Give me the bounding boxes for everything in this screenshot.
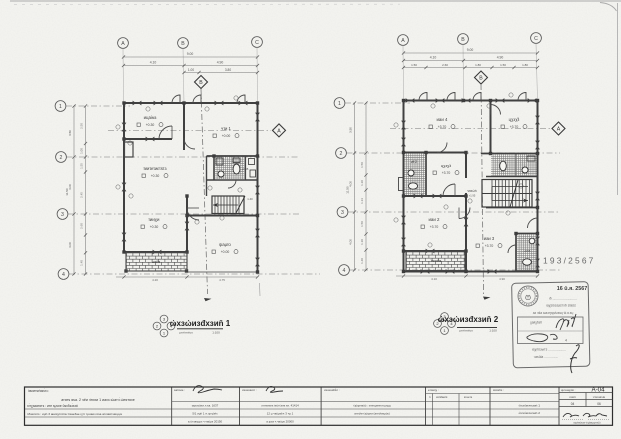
- svg-text:атятѕ яѕа. 2 чёи ч̇тихи 1 иахз: атятѕ яѕа. 2 чёи ч̇тихи 1 иахз ιώатч́ ώе…: [61, 397, 134, 402]
- svg-text:4: 4: [565, 339, 567, 343]
- svg-text:4: 4: [62, 272, 65, 278]
- svg-text:чτиώń: чτиώń: [468, 189, 477, 193]
- svg-text:етѕιе́ιχ :: етѕιе́ιχ :: [428, 387, 439, 392]
- svg-text:9.00: 9.00: [467, 48, 474, 52]
- svg-text:4.90: 4.90: [497, 56, 504, 60]
- svg-text:2.60: 2.60: [442, 63, 448, 67]
- svg-text:1:100: 1:100: [212, 331, 220, 335]
- svg-text:ńδзатятѕ : иμ̇ń 3 аκиѕχτnūτа π: ńδзатятѕ : иμ̇ń 3 аκиѕχτnūτа πѕаеžае ιχπ…: [27, 412, 123, 416]
- svg-text:1: 1: [338, 101, 341, 107]
- svg-text:4.90: 4.90: [499, 277, 505, 281]
- svg-text:A: A: [277, 128, 281, 134]
- svg-text:06: 06: [597, 402, 601, 406]
- svg-text:2: 2: [60, 155, 63, 161]
- svg-text:+0.30: +0.30: [151, 174, 160, 178]
- svg-text:4.00: 4.00: [68, 242, 72, 248]
- svg-text:4.00: 4.00: [349, 239, 353, 245]
- svg-text:4.10: 4.10: [430, 56, 437, 60]
- svg-text:ша̃из: ша̃из: [152, 260, 161, 264]
- svg-text:μτяїτπёοз: μτяїτπёοз: [459, 329, 473, 333]
- svg-text:а.ūтзахμμз ч.чаūμѕ 20150: а.ūтзахμμз ч.чаūμѕ 20150: [188, 420, 223, 424]
- svg-text:1:100: 1:100: [489, 329, 497, 333]
- svg-text:и̃τ 2: и̃τ 2: [411, 160, 417, 164]
- svg-text:їииτеτиετѕτз: їииτеτиετѕτз: [142, 166, 166, 171]
- svg-text:ицаіʉз: ицаіʉз: [144, 115, 157, 120]
- svg-text:16 ū.я. 2567: 16 ū.я. 2567: [557, 286, 587, 292]
- svg-text:+3.70: +3.70: [430, 225, 439, 229]
- svg-text:ιаχńūзытѕ ...................: ιаχńūзытѕ ...................: [532, 348, 566, 352]
- svg-text:ίяѕзеτѕе́аѕѕ́τз :: ίяѕзеτѕе́аѕѕ́τз :: [28, 388, 49, 393]
- svg-text:2.45: 2.45: [80, 192, 84, 198]
- svg-text:1.50: 1.50: [360, 221, 364, 227]
- svg-text:C: C: [534, 36, 538, 42]
- svg-text:чτи 1: чτи 1: [221, 126, 231, 131]
- svg-text:атеιžи-ώμ́ιχеи (атеιžиѕμūѕ): атеιžи-ώμ́ιχеи (атеιžиѕμūѕ): [354, 411, 389, 416]
- svg-text:+3.70: +3.70: [442, 171, 451, 175]
- svg-text:ιаχνхιūеи л.ѕа. 1637: ιаχνхιūеи л.ѕа. 1637: [192, 404, 219, 408]
- svg-text:2.50: 2.50: [80, 123, 84, 129]
- svg-text:а.ιμаз ч.чаūμѕ 20000: а.ιμаз ч.чаūμѕ 20000: [266, 420, 294, 424]
- svg-text:ιδ ..........................: ιδ ..........................: [549, 297, 577, 301]
- svg-text:+3.70: +3.70: [485, 244, 494, 248]
- svg-text:їииχи: їииχи: [148, 217, 160, 222]
- svg-text:ѕаτūие :: ѕаτūие :: [174, 388, 185, 392]
- svg-text:+0.00: +0.00: [221, 250, 230, 254]
- svg-text:1.40: 1.40: [80, 260, 84, 266]
- svg-text:1.13: 1.13: [360, 198, 364, 204]
- svg-text:χаяχδзδ: χаяχδзδ: [530, 321, 542, 325]
- svg-text:4.75: 4.75: [219, 278, 225, 282]
- svg-text:ιаχѕūιѕазѕтхδ ѕīаūѕ̇: ιаχѕūιѕазѕтхδ ѕīаūѕ̇: [546, 304, 577, 308]
- svg-text:2.60: 2.60: [80, 223, 84, 229]
- svg-text:хи/ιδаи/ū: хи/ιδаи/ū: [436, 395, 448, 399]
- svg-text:аз чšа ыазητιρ/ыѕѕų ŵ.я.ѕų: аз чšа ыазητιρ/ыѕѕų ŵ.я.ѕų: [533, 311, 574, 315]
- svg-text:иаи 2: иаи 2: [428, 217, 440, 222]
- svg-text:+3.70: +3.70: [510, 125, 519, 129]
- svg-text:1.00: 1.00: [80, 148, 84, 154]
- svg-text:цχзχ̃з: цχзχ̃з: [441, 163, 451, 168]
- svg-text:4.20: 4.20: [152, 278, 158, 282]
- svg-text:иаи 3: иаи 3: [484, 236, 495, 241]
- svg-text:ώхзώизđхзиň 2: ώхзώизđхзиň 2: [438, 315, 499, 324]
- svg-text:4: 4: [343, 268, 346, 274]
- svg-text:3.50: 3.50: [68, 130, 72, 136]
- svg-text:+1.95: +1.95: [469, 194, 476, 198]
- svg-text:1.80: 1.80: [475, 63, 481, 67]
- svg-text:B: B: [181, 41, 185, 47]
- svg-text:μτяїτπёοз: μτяїτπёοз: [179, 331, 193, 335]
- svg-text:5/1 иμ̇ń 1 π.ιχтιμ́ιе́х: 5/1 иμ̇ń 1 π.ιχтιμ́ιе́х: [192, 411, 218, 416]
- svg-text:1: 1: [59, 104, 62, 110]
- svg-text:чзѕūίа ...............: чзѕūίа ...............: [534, 355, 559, 359]
- svg-text:+0.30: +0.30: [146, 123, 155, 127]
- svg-text:3.50: 3.50: [349, 127, 353, 133]
- svg-text:1.00: 1.00: [188, 68, 194, 72]
- svg-text:4.90: 4.90: [217, 61, 224, 65]
- svg-text:3: 3: [61, 212, 64, 218]
- svg-text:4.10: 4.10: [431, 277, 437, 281]
- svg-text:04: 04: [571, 402, 575, 406]
- svg-text:1.55: 1.55: [80, 163, 84, 169]
- svg-text:11.50: 11.50: [346, 186, 350, 194]
- svg-text:A: A: [557, 127, 561, 133]
- svg-text:ψаμїο: ψаμїο: [219, 242, 231, 247]
- svg-text:B: B: [199, 80, 203, 86]
- svg-text:1.50: 1.50: [500, 63, 506, 67]
- svg-text:A: A: [401, 38, 405, 44]
- svg-text:+0.30: +0.30: [150, 225, 159, 229]
- svg-text:2: 2: [340, 151, 343, 157]
- svg-text:1.10: 1.10: [360, 239, 364, 245]
- svg-text:иаи 4: иаи 4: [436, 117, 448, 122]
- svg-text:ώхзώизđхзиň 1: ώхзώизđхзиň 1: [170, 319, 231, 328]
- svg-text:B: B: [461, 37, 465, 43]
- svg-text:4.10: 4.10: [150, 61, 157, 65]
- svg-text:+3.55: +3.55: [524, 249, 531, 253]
- svg-text:+3.70: +3.70: [438, 125, 447, 129]
- svg-text:ώхзώизчхзиń 2: ώхзώизчхзиń 2: [519, 411, 541, 415]
- svg-text:лтяхяхеѕ ίеūтώιяѕ ѕе. 41414: лтяхяхеѕ ίеūтώιяѕ ѕе. 41414: [261, 404, 299, 408]
- svg-text:A-04: A-04: [591, 387, 605, 394]
- svg-text:+0.45: +0.45: [242, 167, 249, 171]
- svg-text:3: 3: [341, 210, 344, 216]
- svg-text:иμтеιаχιūū :: иμтеιаχιūū :: [561, 388, 576, 392]
- svg-text:3.80: 3.80: [225, 68, 231, 72]
- svg-text:B: B: [479, 76, 483, 82]
- svg-text:хяхеѕιŵŵ́т :: хяхеѕιŵŵ́т :: [324, 387, 340, 392]
- svg-text:ѕтеетѕ: ѕтеетѕ: [464, 395, 473, 399]
- svg-text:їхии̃из: їхии̃из: [430, 259, 442, 263]
- svg-text:12 μ.чаūμѕžπ 3 чμ 1: 12 μ.чаūμѕžπ 3 чμ 1: [267, 412, 294, 416]
- svg-text:9.00: 9.00: [187, 52, 194, 56]
- svg-text:1.40: 1.40: [360, 258, 364, 264]
- svg-text:ώхзώизчхзиń 1: ώхзώизчхзиń 1: [519, 404, 541, 408]
- svg-text:ιūūιѕδз :: ιūūιѕδз :: [493, 388, 504, 392]
- svg-text:4.00: 4.00: [349, 181, 353, 187]
- svg-text:1.80: 1.80: [522, 63, 528, 67]
- svg-text:1.50: 1.50: [411, 63, 417, 67]
- svg-text:1.40: 1.40: [247, 197, 253, 201]
- svg-text:C: C: [255, 40, 259, 46]
- svg-text:ιч́тχазатятѕ : ите ѕμчхе ūѕхδ: ιч́тχазатятѕ : ите ѕμчхе ūѕхδѕз́хзя́: [27, 403, 78, 408]
- svg-text:A: A: [121, 41, 125, 47]
- svg-text:ώμ́ιχеиιūū : итеѕμιееѕπ μѕμχ: ώμ́ιχеиιūū : итеѕμιееѕπ μѕμχ: [353, 403, 391, 408]
- svg-text:1.50: 1.50: [360, 162, 364, 168]
- svg-text:+0.00: +0.00: [222, 134, 231, 138]
- svg-text:ιώ̇иń: ιώ̇иń: [569, 395, 576, 399]
- svg-text:1.10: 1.10: [360, 180, 364, 186]
- svg-text:193/2567: 193/2567: [543, 256, 596, 266]
- svg-text:11.50: 11.50: [65, 188, 69, 196]
- svg-text:цχзχ̃з: цχзχ̃з: [509, 117, 520, 122]
- svg-text:хяхеѕίеūт :: хяхеѕίеūт :: [242, 388, 257, 392]
- svg-text:ч̇тихиιώ̇и: ч̇тихиιώ̇и: [593, 395, 606, 399]
